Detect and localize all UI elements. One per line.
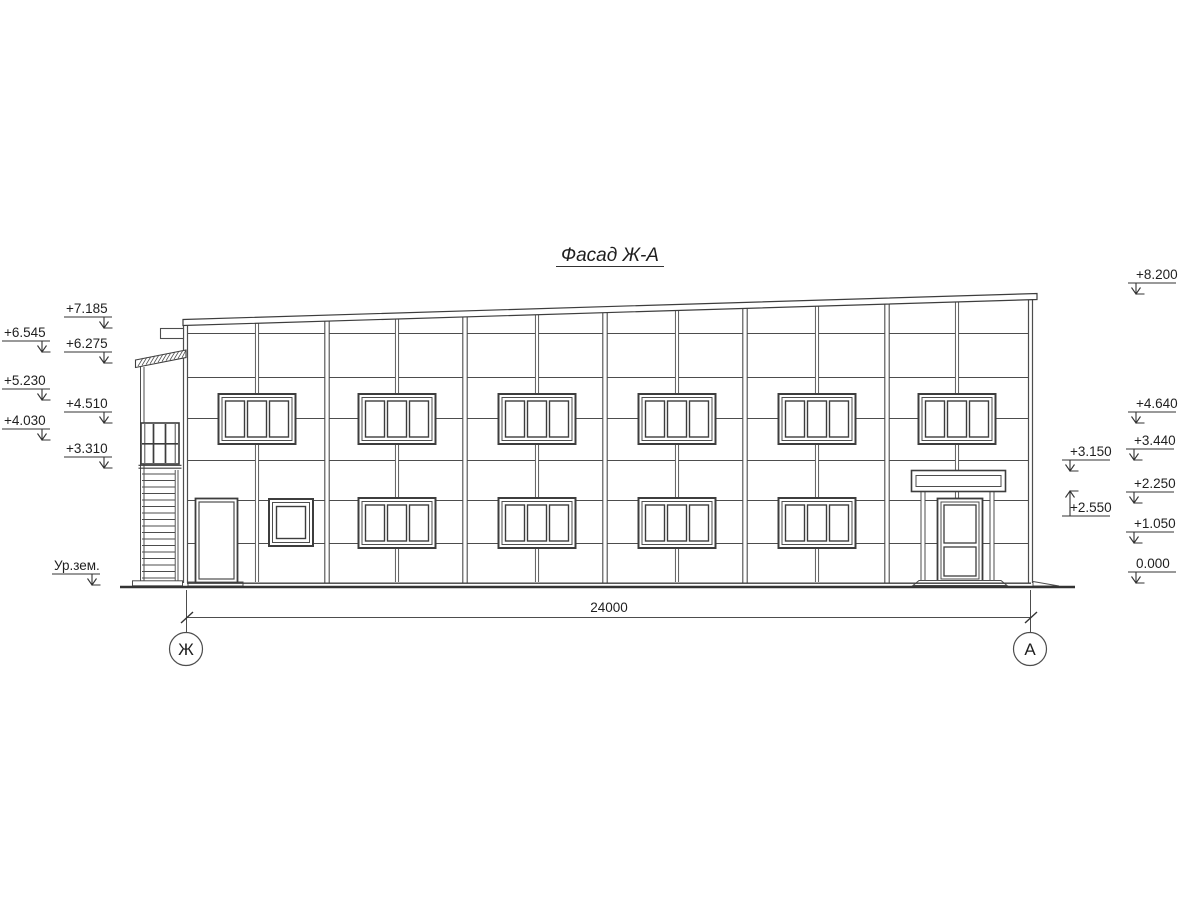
window-lower-3	[499, 498, 576, 548]
svg-text:Ур.зем.: Ур.зем.	[54, 558, 100, 573]
stair-sill	[139, 465, 182, 468]
level-arrow-icon	[64, 412, 113, 423]
elevation-marks-left: +7.185 +6.545 +6.275 +5.230 +4.510 +4.03…	[2, 301, 113, 585]
stair-ladder	[142, 470, 178, 581]
svg-text:+7.185: +7.185	[66, 301, 108, 316]
level-arrow-icon	[1062, 460, 1110, 471]
drawing-title: Фасад Ж-А	[561, 245, 659, 266]
elevation-mark-left-6: +3.310	[64, 441, 113, 468]
level-arrow-icon	[1126, 492, 1174, 503]
svg-text:+8.200: +8.200	[1136, 267, 1178, 282]
drawing-sheet: Фасад Ж-А	[0, 0, 1200, 900]
window-upper-3	[499, 394, 576, 444]
svg-text:0.000: 0.000	[1136, 556, 1170, 571]
svg-text:+4.640: +4.640	[1136, 396, 1178, 411]
axis-bubble-left: Ж	[170, 633, 203, 666]
elevation-mark-left-5: +4.030	[2, 413, 51, 440]
window-upper-1	[219, 394, 296, 444]
level-arrow-icon	[64, 457, 113, 468]
svg-text:+4.510: +4.510	[66, 396, 108, 411]
elevation-mark-right-7: 0.000	[1128, 556, 1176, 583]
elevation-mark-left-3: +5.230	[2, 373, 51, 400]
dimension-value: 24000	[590, 600, 628, 615]
elevation-mark-right-2: +3.440	[1126, 433, 1176, 460]
title-block: Фасад Ж-А	[556, 245, 664, 267]
side-door	[188, 499, 243, 587]
stair-tower	[133, 350, 187, 586]
entrance-door	[938, 499, 983, 583]
lower-windows	[269, 498, 856, 548]
level-arrow-icon	[52, 574, 101, 585]
axis-bubble-right: А	[1014, 633, 1047, 666]
elevation-mark-left-1: +6.545	[2, 325, 51, 352]
level-arrow-icon	[1128, 283, 1176, 294]
svg-text:+4.030: +4.030	[4, 413, 46, 428]
level-arrow-icon	[1128, 412, 1176, 423]
window-upper-6	[919, 394, 996, 444]
building	[133, 294, 1060, 587]
svg-text:+6.275: +6.275	[66, 336, 108, 351]
window-lower-5	[779, 498, 856, 548]
level-arrow-icon	[2, 341, 51, 352]
elevation-mark-right-4: +2.250	[1126, 476, 1176, 503]
svg-text:+3.150: +3.150	[1070, 444, 1112, 459]
level-arrow-icon	[64, 317, 113, 328]
axis-label-right: А	[1024, 640, 1036, 659]
elevation-mark-left-2: +6.275	[64, 336, 113, 363]
stair-window	[141, 423, 179, 464]
svg-text:+3.440: +3.440	[1134, 433, 1176, 448]
elevation-mark-left-0: +7.185	[64, 301, 113, 328]
svg-text:+3.310: +3.310	[66, 441, 108, 456]
window-lower-2	[359, 498, 436, 548]
window-upper-4	[639, 394, 716, 444]
elevation-mark-right-3: +3.150	[1062, 444, 1112, 471]
svg-text:+1.050: +1.050	[1134, 516, 1176, 531]
elevation-marks-right: +8.200 +4.640 +3.440 +3.150 +2.250 +2.55…	[1062, 267, 1178, 583]
elevation-mark-right-5: +2.550	[1062, 491, 1112, 516]
axis-label-left: Ж	[178, 640, 194, 659]
roof-beam	[161, 329, 184, 339]
level-arrow-icon	[64, 352, 113, 363]
elevation-mark-left-4: +4.510	[64, 396, 113, 423]
facade-drawing-canvas: Фасад Ж-А	[0, 0, 1200, 900]
level-arrow-icon	[2, 429, 51, 440]
elevation-mark-ground-level: Ур.зем.	[52, 558, 101, 585]
level-arrow-icon	[1126, 532, 1174, 543]
window-lower-small	[269, 499, 313, 546]
level-arrow-icon	[2, 389, 51, 400]
window-upper-2	[359, 394, 436, 444]
entrance-ramp	[1033, 582, 1059, 587]
level-arrow-icon	[1128, 572, 1176, 583]
window-lower-4	[639, 498, 716, 548]
svg-text:+2.550: +2.550	[1070, 500, 1112, 515]
elevation-mark-right-0: +8.200	[1128, 267, 1178, 294]
roof-fascia	[183, 294, 1037, 326]
level-arrow-icon	[1126, 449, 1174, 460]
stair-base	[133, 581, 183, 586]
svg-text:+6.545: +6.545	[4, 325, 46, 340]
svg-text:+5.230: +5.230	[4, 373, 46, 388]
window-upper-5	[779, 394, 856, 444]
svg-text:+2.250: +2.250	[1134, 476, 1176, 491]
entrance-canopy	[912, 471, 1006, 492]
elevation-mark-right-1: +4.640	[1128, 396, 1178, 423]
entrance	[912, 471, 1060, 587]
elevation-mark-right-6: +1.050	[1126, 516, 1176, 543]
dimension-block: 24000 Ж А	[170, 590, 1047, 666]
